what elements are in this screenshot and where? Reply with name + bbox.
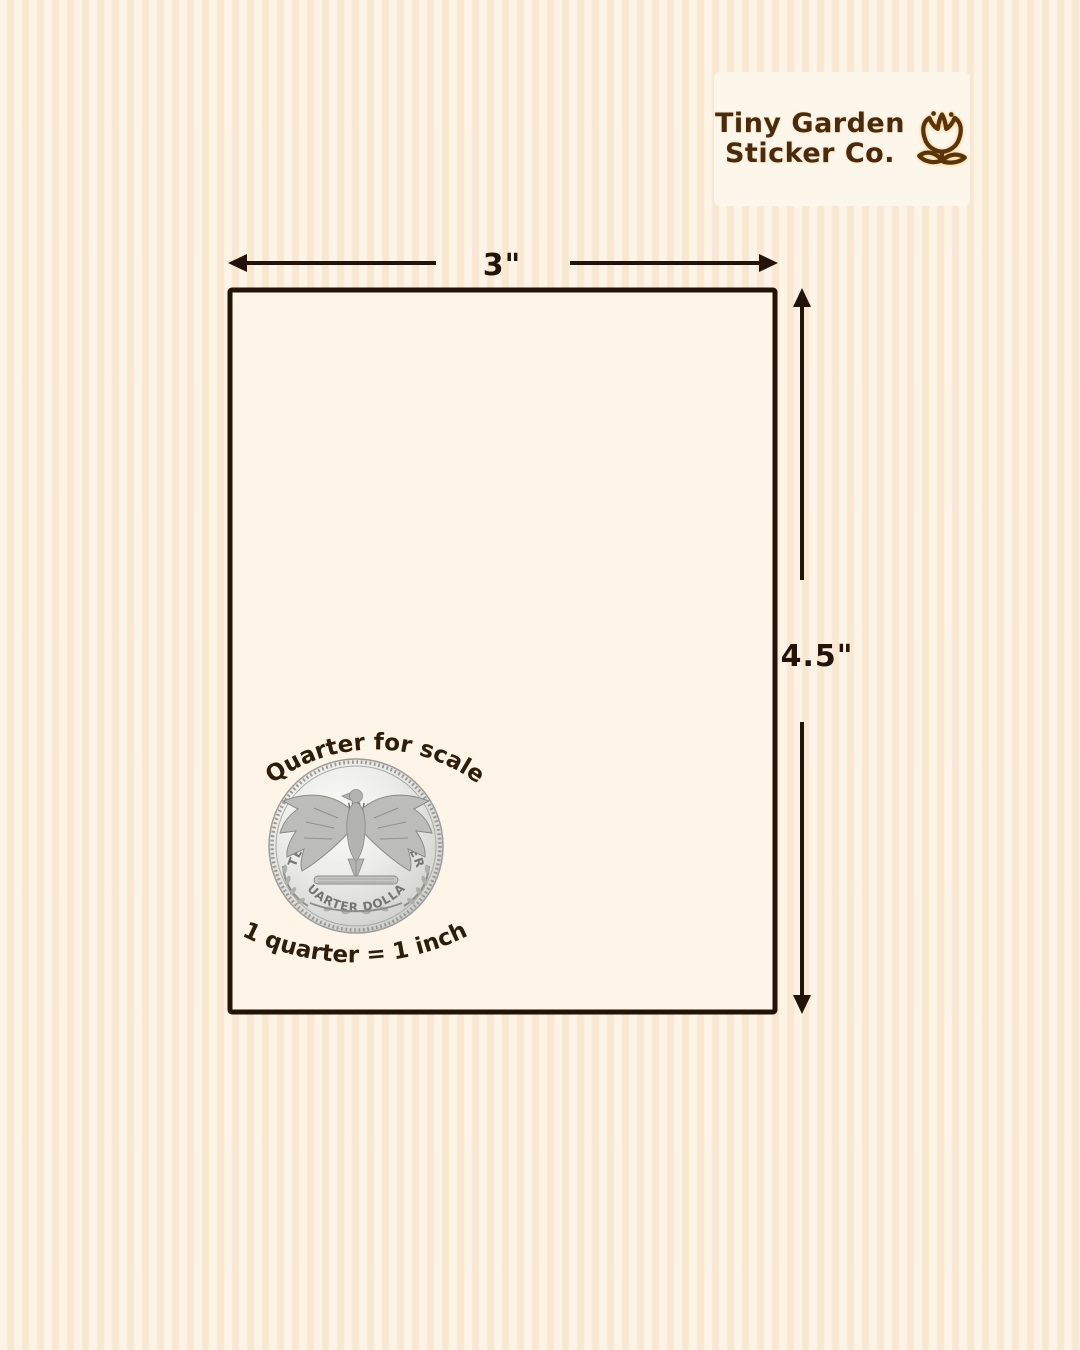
arrowhead-right [759,254,778,272]
eagle-head [350,790,363,803]
size-guide-diagram: 3" 4.5" UNITED STATES OF AMERICA E PLURI… [0,0,1080,1350]
quarter-coin-image: UNITED STATES OF AMERICA E PLURIBUS UNUM… [269,759,443,933]
arrowhead-up [793,288,811,307]
arrowhead-down [793,995,811,1014]
width-label: 3" [483,248,522,283]
arrow-bundle-perch [314,876,398,884]
height-label: 4.5" [781,639,854,674]
arrowhead-left [228,254,247,272]
product-size-guide-mockup: Tiny Garden Sticker Co. [0,0,1080,1350]
